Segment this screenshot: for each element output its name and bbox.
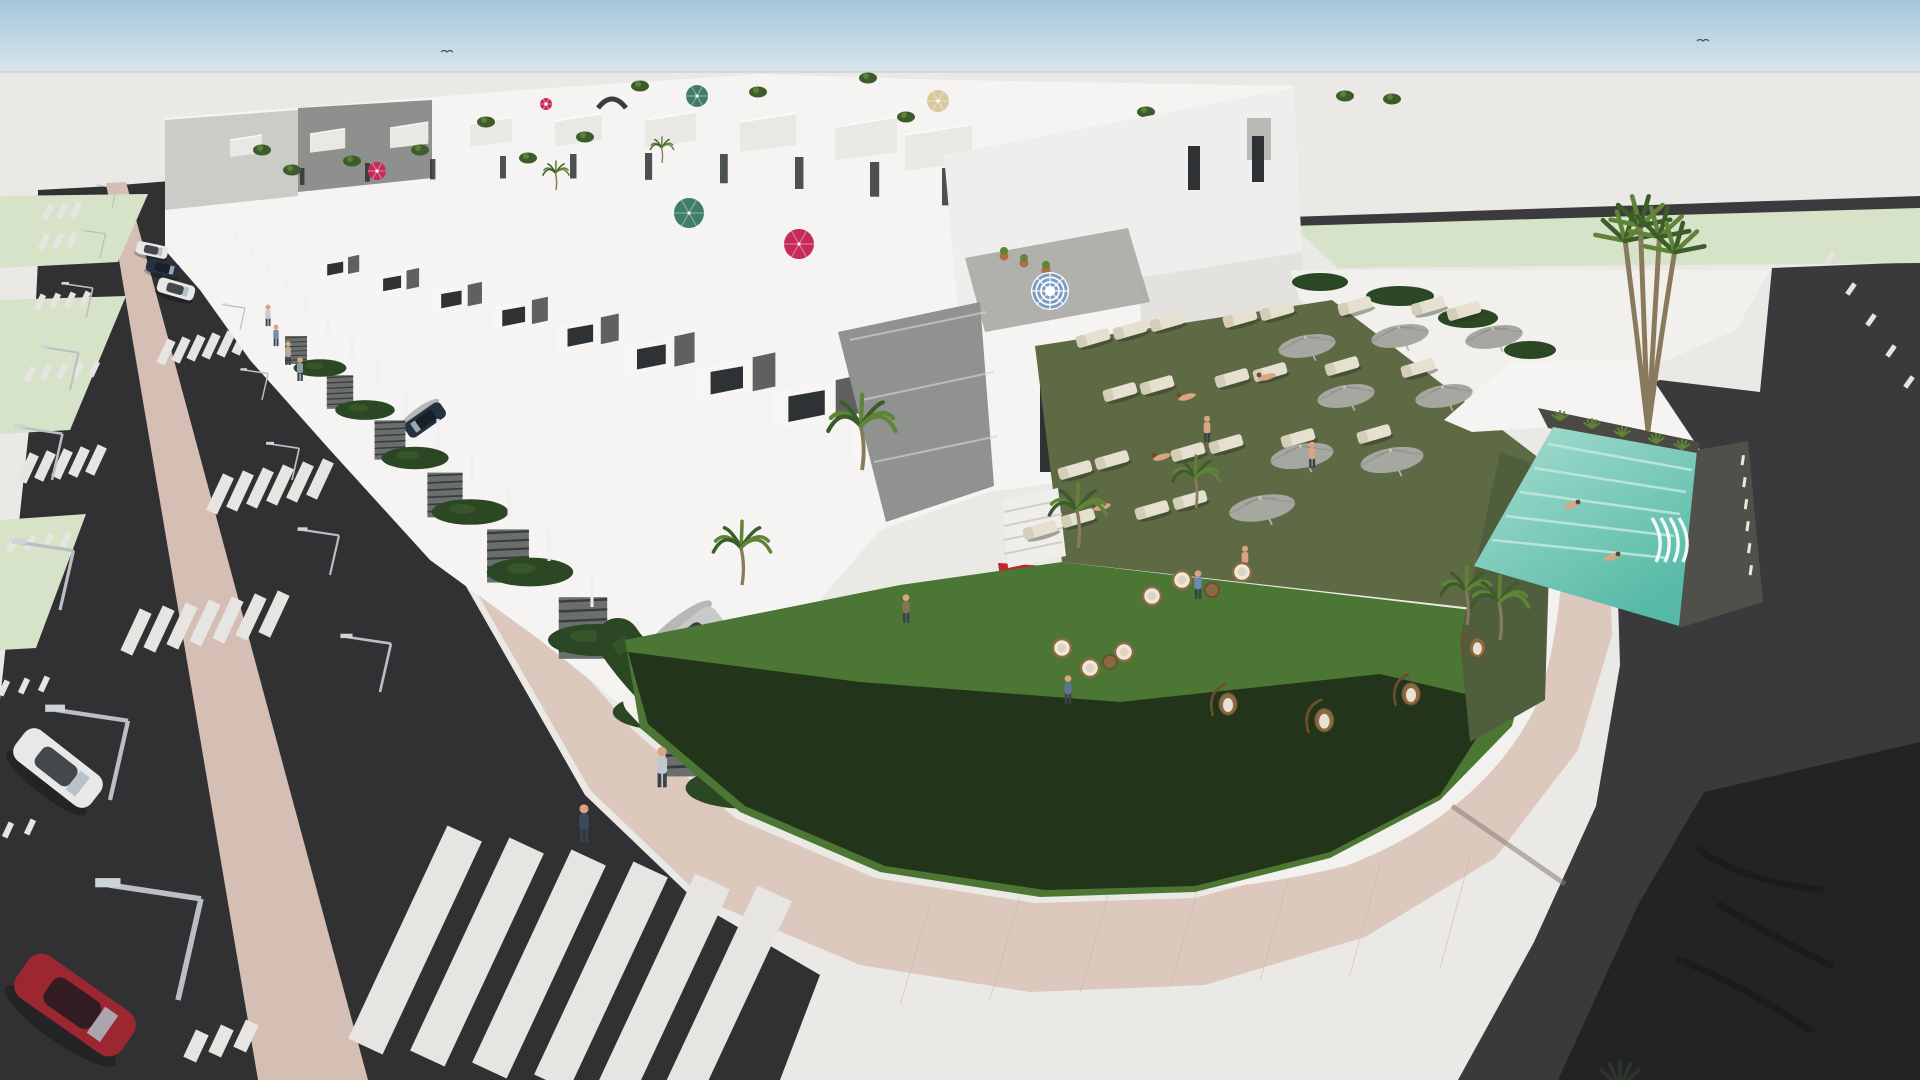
hedge-highlight: [306, 363, 324, 370]
blue-striped-umbrella: [1031, 272, 1069, 310]
head: [1065, 675, 1072, 682]
umbrella-tip: [695, 94, 698, 97]
umbrella-tip: [797, 242, 800, 245]
roof-plant-highlight: [901, 112, 907, 118]
rattan-table: [1205, 583, 1219, 597]
facade-window: [720, 154, 728, 183]
legs: [269, 318, 271, 326]
torso: [902, 601, 909, 613]
legs: [297, 372, 299, 381]
legs: [907, 612, 910, 623]
torso: [265, 310, 270, 319]
legs: [580, 828, 584, 842]
torso: [273, 330, 278, 339]
swimmer-head: [1576, 500, 1581, 505]
legs: [1065, 693, 1068, 704]
sunbather-head: [1257, 373, 1262, 378]
head: [285, 341, 291, 347]
roof-umbrella: [674, 198, 704, 228]
torso: [297, 363, 303, 373]
torso: [1194, 577, 1201, 589]
egg-chair-cushion: [1406, 688, 1416, 702]
head: [1204, 416, 1210, 422]
legs: [903, 612, 906, 623]
legs: [277, 338, 279, 346]
roof-plant-highlight: [863, 73, 869, 79]
roof-plant-highlight: [523, 153, 529, 159]
architectural-render: [0, 0, 1920, 1080]
torso: [1242, 552, 1249, 563]
papasan-cushion: [1238, 568, 1247, 577]
facade-window: [570, 154, 576, 178]
fence-post: [304, 295, 307, 312]
legs: [1204, 432, 1206, 442]
torso: [285, 347, 291, 357]
fence-post: [405, 389, 408, 413]
fence-post: [376, 362, 379, 384]
roof-umbrella: [784, 229, 814, 259]
head: [657, 747, 667, 757]
lamp-head: [11, 538, 26, 543]
lamp-head: [14, 424, 26, 428]
render-stage: [0, 0, 1920, 1080]
papasan-cushion: [1058, 644, 1067, 653]
legs: [658, 772, 662, 787]
fence-post: [350, 338, 353, 358]
lamp-head: [45, 705, 65, 712]
pot-plant: [1042, 261, 1050, 269]
hedge-highlight: [507, 563, 536, 574]
facade-window: [645, 153, 652, 180]
umbrella-tip: [936, 99, 939, 102]
lamp-head: [240, 368, 247, 370]
torso: [1309, 448, 1316, 459]
roof-plant-highlight: [257, 145, 263, 151]
fence-post: [284, 277, 287, 292]
swimmer-head: [1616, 552, 1621, 557]
torso: [657, 757, 667, 774]
legs: [266, 318, 268, 326]
fence-post: [250, 247, 253, 258]
papasan-cushion: [1148, 592, 1157, 601]
lamp-head: [340, 634, 352, 638]
rattan-table: [1103, 655, 1117, 669]
partition-panel: [753, 352, 776, 391]
fence-post: [547, 529, 550, 561]
wall-hedge: [1504, 341, 1556, 359]
head: [903, 594, 910, 601]
sky: [0, 0, 1920, 72]
legs: [289, 356, 291, 365]
roof-plant-highlight: [580, 132, 586, 138]
fence-post: [326, 316, 329, 335]
torso: [1064, 682, 1071, 694]
lamp-head: [298, 527, 308, 531]
wall-hedge: [1292, 273, 1348, 291]
legs: [663, 772, 667, 787]
partition-panel: [348, 255, 359, 274]
fence-post: [507, 489, 510, 519]
head: [265, 305, 270, 310]
legs: [585, 828, 589, 842]
roof-plant-highlight: [415, 145, 421, 151]
legs: [1195, 588, 1198, 599]
head: [273, 325, 278, 330]
fence-post: [590, 573, 593, 607]
hedge-highlight: [349, 404, 369, 411]
umbrella-tip: [544, 102, 547, 105]
partition-panel: [468, 282, 482, 306]
partition-panel: [407, 268, 420, 290]
head: [580, 804, 589, 813]
legs: [285, 356, 287, 365]
roof-plant-highlight: [347, 156, 353, 162]
head: [1195, 570, 1202, 577]
sunbather-head: [1177, 393, 1182, 398]
tower-window: [1252, 136, 1264, 182]
facade-window: [870, 162, 879, 197]
legs: [274, 338, 276, 346]
roof-umbrella: [686, 85, 708, 107]
roof-plant-highlight: [1387, 94, 1393, 100]
legs: [301, 372, 303, 381]
roof-plant-highlight: [1340, 91, 1346, 97]
partition-panel: [601, 313, 619, 344]
pot-plant: [1000, 247, 1008, 255]
roof-plant-highlight: [481, 117, 487, 123]
lamp-head: [39, 345, 48, 348]
partition-panel: [532, 297, 548, 324]
lamp-head: [222, 304, 228, 306]
egg-chair-cushion: [1319, 714, 1330, 729]
fence-post: [436, 419, 439, 445]
roof-umbrella: [927, 90, 949, 112]
carport-block: [165, 110, 298, 210]
lamp-head: [96, 184, 101, 186]
papasan-cushion: [1086, 664, 1095, 673]
head: [1242, 546, 1248, 552]
facade-window: [500, 156, 506, 178]
legs: [1199, 588, 1202, 599]
head: [297, 357, 303, 363]
roof-umbrella: [368, 162, 386, 180]
fence-post: [235, 235, 238, 244]
lamp-head: [80, 229, 86, 231]
facade-window: [795, 157, 803, 189]
lamp-head: [95, 878, 120, 887]
roof-plant-highlight: [1141, 107, 1147, 113]
roof-umbrella: [540, 98, 552, 110]
fence-post: [266, 261, 269, 274]
tower-window: [1188, 146, 1200, 190]
facade-window: [430, 159, 435, 179]
roof-plant-highlight: [635, 81, 641, 87]
egg-chair-cushion: [1223, 698, 1233, 712]
legs: [1069, 693, 1072, 704]
roof-plant-highlight: [753, 87, 759, 93]
hedge-highlight: [449, 504, 475, 514]
torso: [1204, 422, 1211, 433]
legs: [1208, 432, 1210, 442]
hedge-highlight: [397, 451, 419, 459]
umbrella-tip: [375, 169, 378, 172]
umbrella-tip: [687, 211, 690, 214]
pot-plant: [1020, 254, 1028, 262]
papasan-cushion: [1178, 576, 1187, 585]
legs: [1313, 458, 1315, 468]
lamp-head: [62, 282, 69, 285]
head: [1309, 442, 1315, 448]
sunbather-head: [1152, 453, 1157, 458]
legs: [1309, 458, 1311, 468]
partition-panel: [674, 332, 694, 367]
egg-chair-cushion: [1473, 642, 1482, 655]
roof-plant-highlight: [287, 165, 293, 171]
torso: [579, 814, 589, 830]
fence-post: [470, 452, 473, 480]
lamp-head: [266, 442, 274, 445]
papasan-cushion: [1120, 648, 1129, 657]
